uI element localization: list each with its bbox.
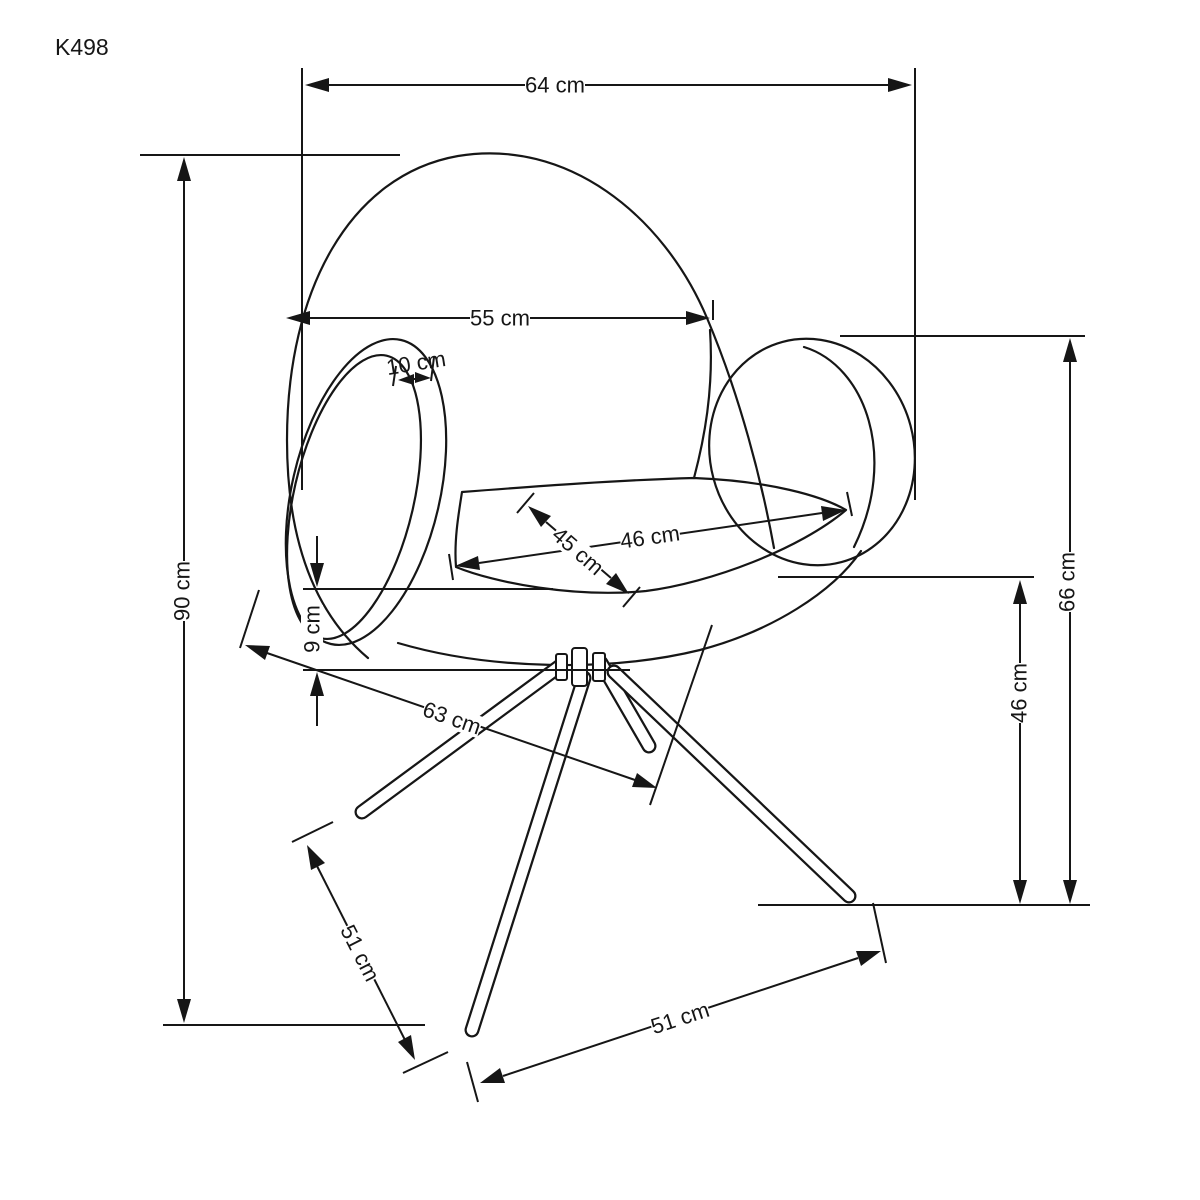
model-number-label: K498 — [55, 34, 109, 60]
swivel-bracket-left — [556, 654, 567, 680]
dim-label-overall-width: 64 cm — [525, 73, 585, 98]
label-armrest-height: 66 cm — [1055, 552, 1080, 612]
label-cushion-thickness: 9 cm — [300, 605, 325, 653]
label-overall-width: 64 cm — [525, 73, 585, 98]
dim-label-cushion-thickness: 9 cm — [300, 605, 325, 653]
swivel-mechanism — [556, 648, 605, 686]
label-overall-height: 90 cm — [170, 561, 195, 621]
technical-drawing-page: K498 64 cm 55 cm 10 cm 45 cm 46 cm 90 cm… — [0, 0, 1200, 1200]
swivel-bracket-right — [593, 653, 605, 681]
dim-label-armrest-height: 66 cm — [1055, 552, 1080, 612]
dim-label-backrest-width: 55 cm — [470, 306, 530, 331]
dim-label-overall-height: 90 cm — [170, 561, 195, 621]
chair-dimension-diagram: K498 64 cm 55 cm 10 cm 45 cm 46 cm 90 cm… — [0, 0, 1200, 1200]
label-seat-height: 46 cm — [1007, 663, 1032, 723]
dim-label-seat-height: 46 cm — [1007, 663, 1032, 723]
label-backrest-width: 55 cm — [470, 306, 530, 331]
swivel-column — [572, 648, 587, 686]
